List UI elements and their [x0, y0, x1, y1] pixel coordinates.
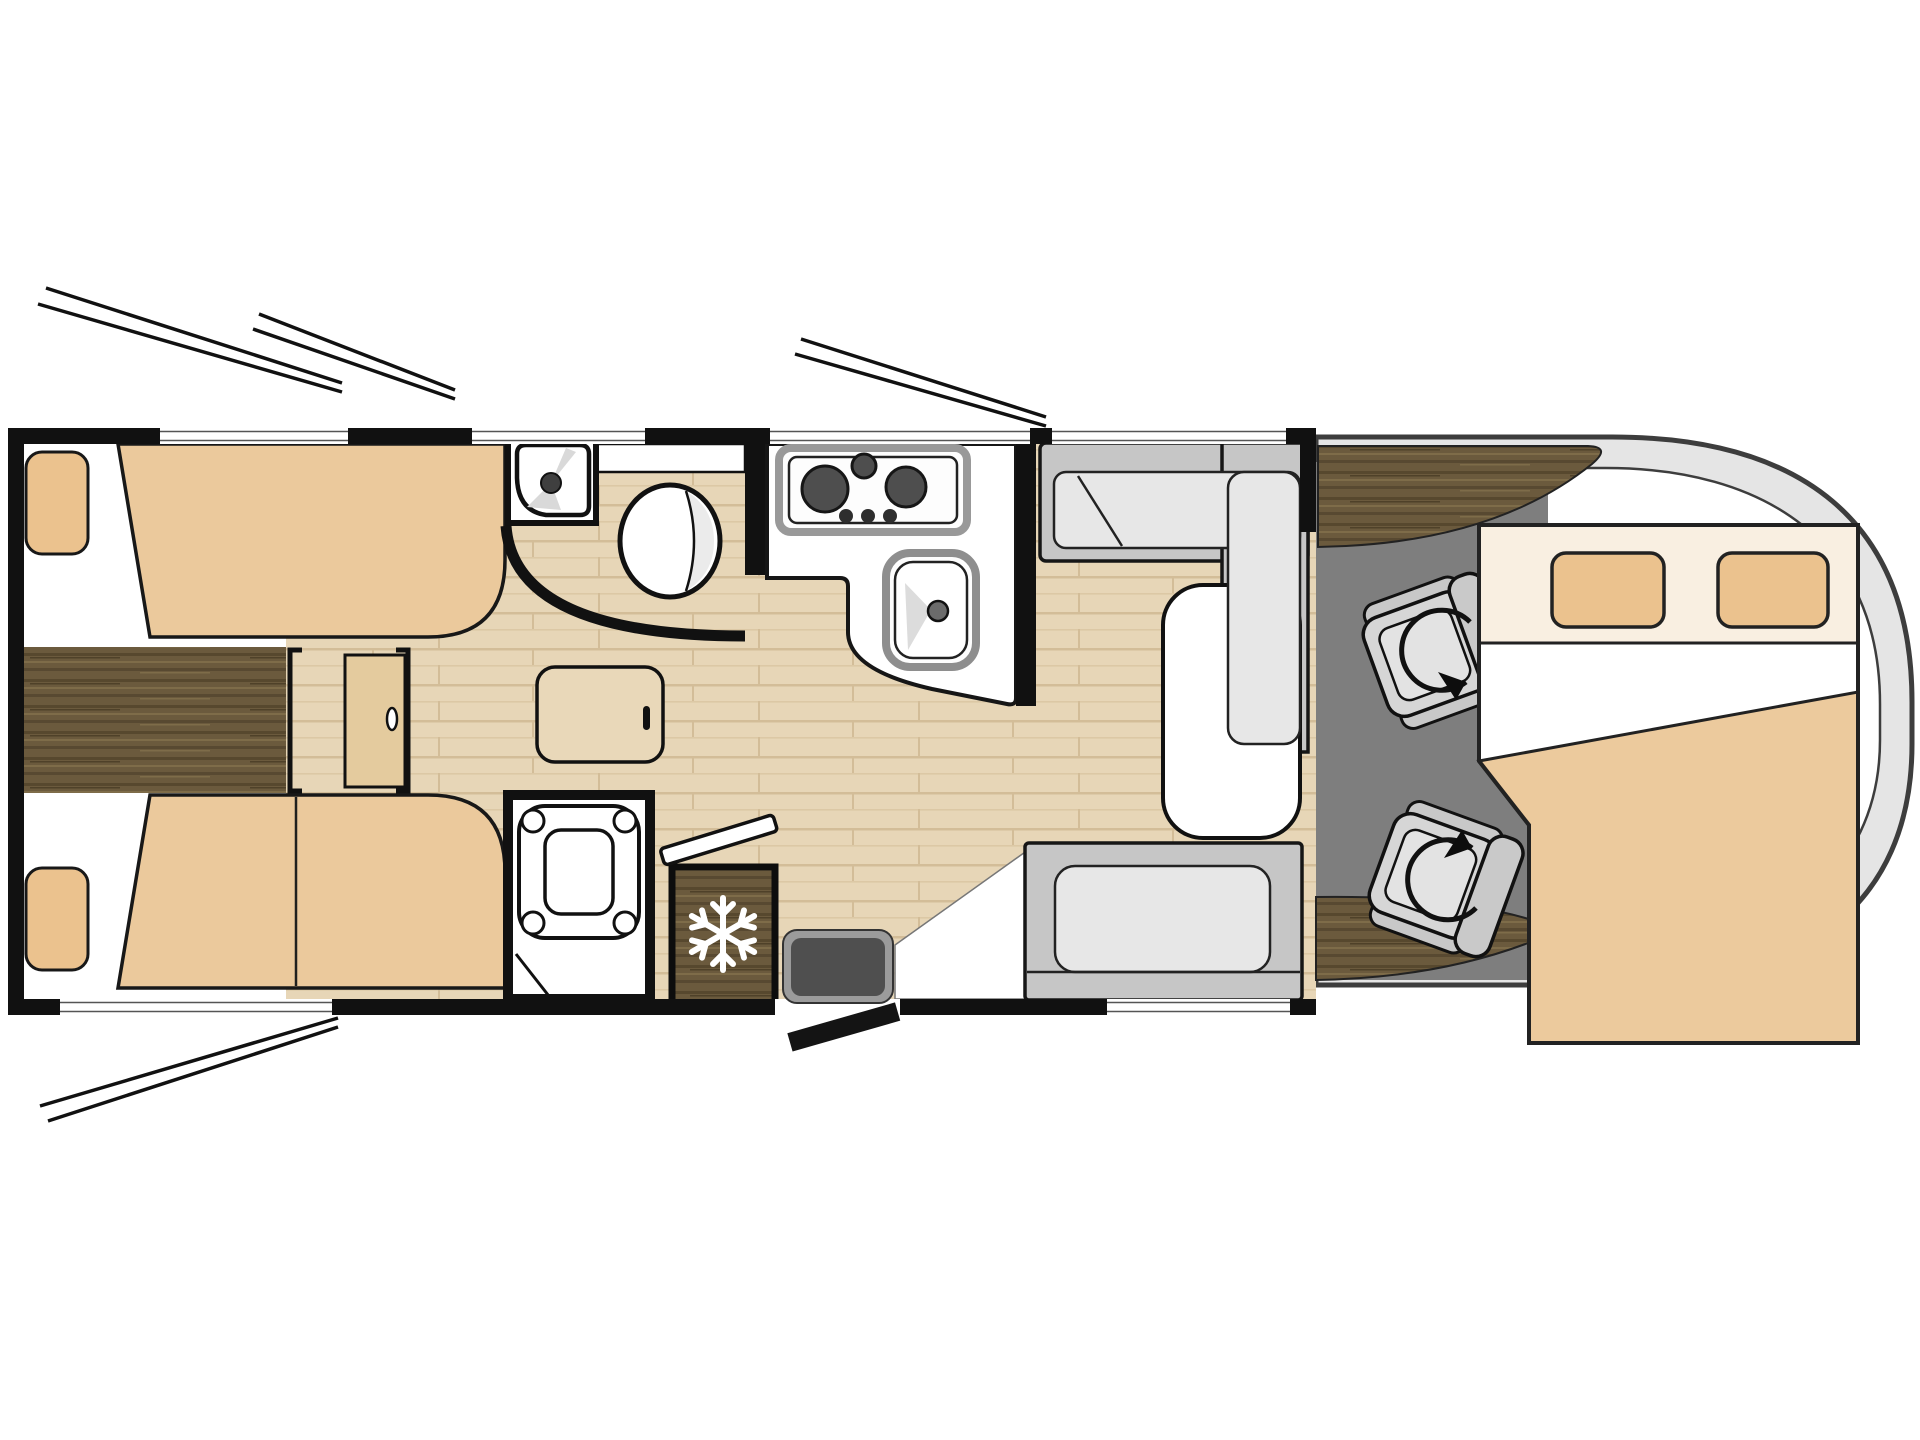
- burner-small-center: [852, 454, 876, 478]
- shower-tray-inner: [545, 830, 613, 914]
- shower-tray-cap: [614, 912, 636, 934]
- kitchen-dinette-divider-wall: [1016, 442, 1036, 706]
- shower-tray-cap: [522, 912, 544, 934]
- dinette-cushion-right: [1228, 472, 1300, 744]
- shower-room: [503, 790, 655, 1003]
- wall-left: [8, 428, 24, 1015]
- floorplan-svg: [0, 0, 1920, 1440]
- washroom-right-wall: [745, 433, 765, 575]
- front-drop-down-bed: [1479, 525, 1858, 1043]
- open-window-pane: [253, 314, 455, 399]
- floorplan-stage: [0, 0, 1920, 1440]
- bedroom-aisle-wood: [24, 647, 286, 793]
- pillow-top: [26, 452, 88, 554]
- washroom-vanity-band: [595, 444, 745, 472]
- window-gap: [1052, 428, 1286, 444]
- wall-stub-top-right: [1300, 428, 1316, 532]
- bedside-cabinet: [537, 667, 663, 762]
- hob-knob: [861, 509, 875, 523]
- washbasin-faucet: [541, 473, 561, 493]
- shower-tray-cap: [614, 810, 636, 832]
- dinette-cushion-bottom: [1055, 866, 1270, 972]
- twin-bed-bottom: [118, 795, 505, 988]
- shower-tray-cap: [522, 810, 544, 832]
- burner-large-right: [886, 467, 926, 507]
- pillow-bottom: [26, 868, 88, 970]
- twin-bed-top: [118, 444, 505, 637]
- window-gap: [160, 428, 348, 444]
- refrigerator: [672, 867, 775, 1003]
- window-gap: [472, 428, 645, 444]
- entry-step-mat: [783, 930, 893, 1003]
- front-bed-pillow-left: [1552, 553, 1664, 627]
- sink-faucet: [928, 601, 948, 621]
- window-gap: [1107, 999, 1290, 1015]
- hob-knob: [839, 509, 853, 523]
- front-bed-pillow-right: [1718, 553, 1828, 627]
- bedside-cabinet-handle: [643, 706, 650, 730]
- open-window-pane: [795, 339, 1046, 426]
- open-window-pane: [38, 288, 342, 392]
- window-gap: [770, 428, 1030, 444]
- pocket-door-handle: [387, 708, 397, 730]
- hob-knob: [883, 509, 897, 523]
- window-gap: [60, 999, 332, 1015]
- burner-large-left: [802, 466, 848, 512]
- entry-step-mat-inner: [791, 938, 885, 996]
- open-window-pane: [40, 1018, 338, 1121]
